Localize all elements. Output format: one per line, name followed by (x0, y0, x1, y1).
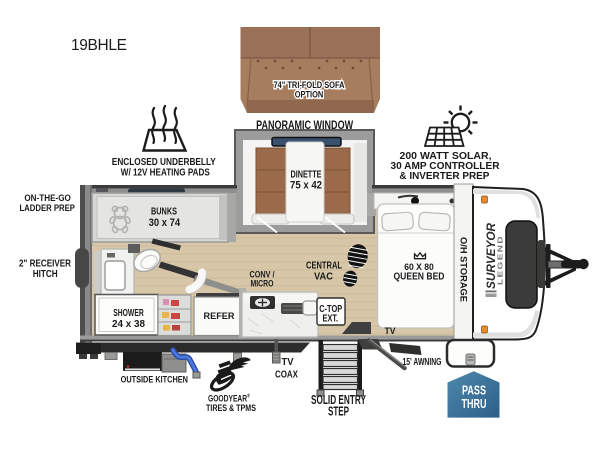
svg-text:OPTION: OPTION (295, 90, 324, 101)
svg-text:COAX: COAX (275, 370, 298, 381)
svg-text:TIRES & TPMS: TIRES & TPMS (206, 403, 256, 414)
svg-text:24 x 38: 24 x 38 (112, 318, 145, 330)
svg-text:LADDER PREP: LADDER PREP (19, 203, 75, 214)
svg-text:REFER: REFER (204, 311, 235, 322)
svg-text:TV: TV (385, 326, 396, 336)
svg-text:75 x 42: 75 x 42 (290, 180, 322, 192)
svg-text:PASS: PASS (462, 384, 486, 398)
svg-text:O/H STORAGE: O/H STORAGE (459, 237, 469, 302)
svg-text:15' AWNING: 15' AWNING (403, 357, 442, 368)
svg-text:EXT.: EXT. (323, 314, 339, 325)
svg-text:THRU: THRU (462, 397, 487, 411)
svg-text:VAC: VAC (314, 271, 333, 283)
svg-text:W/ 12V HEATING PADS: W/ 12V HEATING PADS (121, 167, 210, 179)
svg-text:STEP: STEP (328, 405, 349, 419)
svg-text:& INVERTER PREP: & INVERTER PREP (399, 170, 489, 182)
svg-text:QUEEN BED: QUEEN BED (394, 272, 445, 283)
svg-text:30 x 74: 30 x 74 (149, 217, 181, 229)
svg-text:19BHLE: 19BHLE (71, 37, 127, 54)
svg-text:SURVEYOR: SURVEYOR (484, 223, 498, 289)
svg-text:TV: TV (282, 357, 294, 368)
svg-text:LEGEND: LEGEND (498, 235, 505, 285)
svg-text:HITCH: HITCH (33, 268, 58, 280)
svg-text:MICRO: MICRO (251, 279, 274, 290)
svg-text:OUTSIDE KITCHEN: OUTSIDE KITCHEN (121, 375, 189, 386)
